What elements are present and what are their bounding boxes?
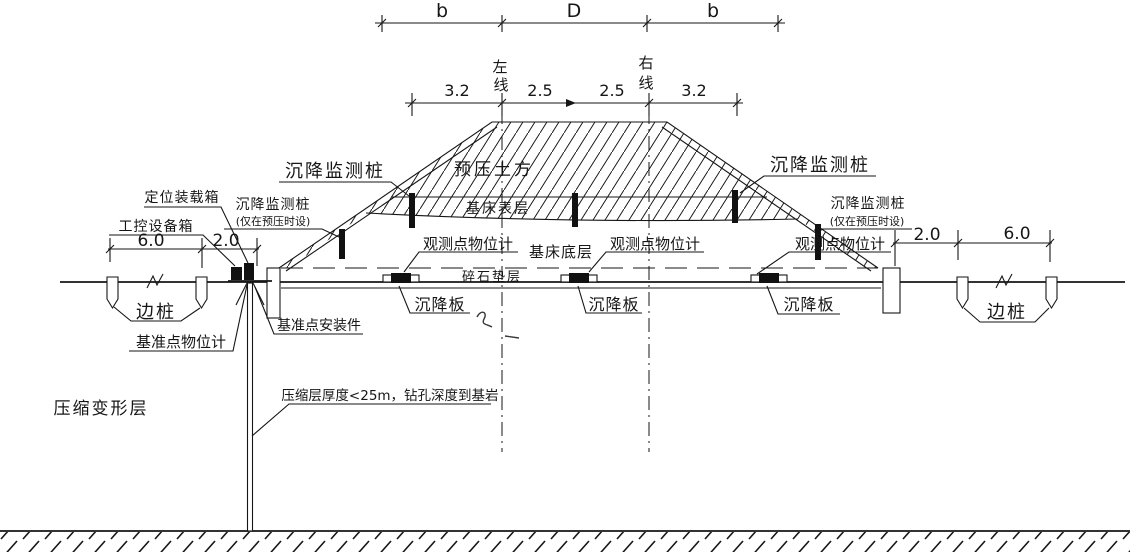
right-line-label: 线	[638, 74, 653, 92]
dim-2-5-right: 2.5	[599, 81, 624, 100]
bedrock-hatch	[0, 532, 1130, 552]
side-pile-icon	[196, 277, 207, 308]
dim-3-2-left: 3.2	[444, 81, 469, 100]
cross-section-drawing: b D b 3.2 2.5 2.5 3.2 左 线 右 线 6.0 2.0 2.…	[0, 0, 1130, 552]
break-mark-right	[996, 274, 1012, 288]
positioning-box-label: 定位装载箱	[145, 190, 220, 206]
control-box-label: 工控设备箱	[119, 218, 194, 235]
benchmark-mount-icon	[267, 268, 280, 318]
side-pile-label: 边桩	[136, 302, 176, 323]
compression-layer-label: 压缩变形层	[54, 399, 149, 419]
gravel-cushion-label: 碎石垫层	[462, 269, 522, 285]
dim-b-right: b	[707, 0, 719, 22]
settlement-plate-icon	[383, 273, 419, 283]
settlement-pile-note: (仅在预压时设)	[830, 215, 905, 228]
left-line-label: 线	[493, 76, 508, 94]
monitor-pile-icon	[732, 190, 738, 223]
settlement-plate-icon	[751, 273, 787, 283]
dim-6-0-right: 6.0	[1003, 224, 1030, 244]
preload-fill-label: 预压土方	[454, 160, 534, 180]
dim-D: D	[567, 0, 582, 22]
benchmark-gauge-label: 基准点物位计	[136, 333, 226, 351]
dim-2-0-right: 2.0	[913, 225, 940, 245]
benchmark-mount-icon	[883, 268, 900, 313]
settlement-pile-note: (仅在预压时设)	[236, 215, 311, 228]
settlement-pile-label: 沉降监测桩	[770, 155, 870, 176]
settlement-plate-label: 沉降板	[588, 295, 639, 314]
monitor-pile-icon	[409, 193, 415, 228]
bed-bottom-label: 基床底层	[529, 243, 593, 261]
settlement-plate-label: 沉降板	[414, 295, 465, 314]
left-line-label: 左	[492, 58, 507, 76]
top-dimension-group: b D b	[375, 0, 785, 32]
dim-b-left: b	[436, 0, 448, 22]
crown-dimension-group: 3.2 2.5 2.5 3.2 左 线 右 线	[405, 54, 743, 116]
embankment-settlement-monitoring-cross-section: b D b 3.2 2.5 2.5 3.2 左 线 右 线 6.0 2.0 2.…	[0, 0, 1130, 552]
monitor-pile-icon	[339, 229, 345, 259]
monitor-pile-icon	[572, 193, 578, 227]
side-pile-icon	[107, 277, 118, 308]
left-offset-dimension-group: 6.0 2.0	[106, 231, 261, 268]
settlement-pile-small-label: 沉降监测桩	[831, 195, 906, 212]
break-mark-left	[147, 274, 163, 288]
side-pile-label: 边桩	[987, 302, 1027, 323]
observation-gauge-label: 观测点物位计	[610, 235, 700, 253]
observation-gauge-label: 观测点物位计	[795, 235, 885, 253]
borehole-note-label: 压缩层厚度<25m，钻孔深度到基岩	[281, 387, 498, 404]
settlement-pile-small-label: 沉降监测桩	[236, 196, 311, 213]
handwritten-mark	[477, 312, 519, 338]
side-pile-icon	[1046, 277, 1057, 308]
settlement-plate-icon	[561, 273, 597, 283]
right-offset-dimension-group: 2.0 6.0	[891, 224, 1054, 266]
settlement-plate-label: 沉降板	[783, 295, 834, 314]
side-pile-icon	[957, 277, 968, 308]
borehole-pipe-icon	[248, 283, 253, 531]
right-line-label: 右	[638, 54, 653, 72]
observation-gauge-label: 观测点物位计	[423, 235, 513, 253]
settlement-pile-label: 沉降监测桩	[285, 161, 385, 182]
dim-2-5-left: 2.5	[527, 81, 552, 100]
benchmark-mount-label: 基准点安装件	[277, 317, 361, 334]
bed-surface-label: 基床表层	[466, 200, 530, 217]
dim-3-2-right: 3.2	[681, 81, 706, 100]
